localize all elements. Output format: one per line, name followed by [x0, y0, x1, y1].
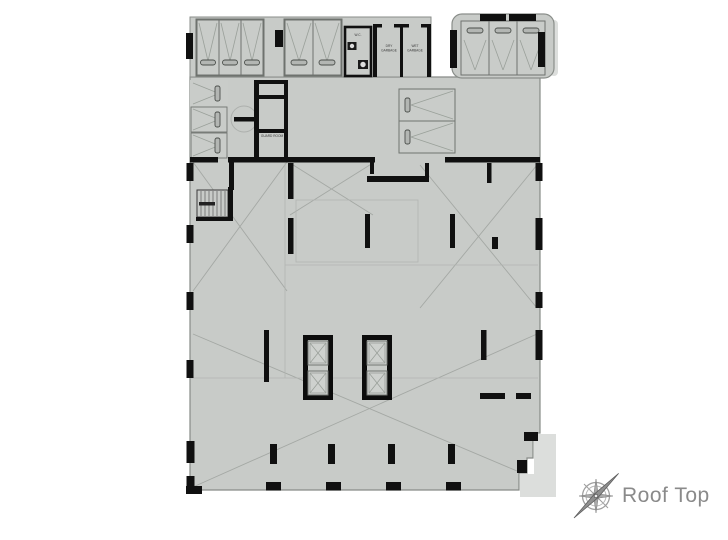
- stall-unit: [197, 20, 219, 75]
- wet-garbage-label-1: WET: [411, 44, 418, 48]
- stall-group-b: [284, 19, 342, 76]
- wet-garbage-label-2: GARBAGE: [407, 49, 423, 53]
- compass-rose-icon: [574, 473, 619, 518]
- stall-group-c: [450, 14, 554, 78]
- wc-room-label: W.C.: [355, 33, 362, 37]
- stall-unit: [489, 21, 517, 75]
- floor-plan-page: W.C. DRY GARBAGE WET GARBAGE: [0, 0, 728, 540]
- wall-stub: [275, 30, 283, 47]
- floor-plan-drawing: W.C. DRY GARBAGE WET GARBAGE: [0, 0, 728, 540]
- stair-direction-bar: [199, 202, 215, 206]
- stall-group-a: [196, 19, 264, 76]
- elevator-cab: [367, 371, 387, 395]
- elevator-cab: [308, 341, 328, 365]
- elevator-cab: [308, 371, 328, 395]
- stairwell: [196, 187, 233, 221]
- wall-stub: [450, 30, 457, 68]
- stall-unit: [285, 20, 313, 75]
- right-machine-cells: [399, 89, 455, 153]
- main-floor-slab: [190, 77, 540, 490]
- wall-stub: [509, 14, 536, 21]
- floor-title: Roof Top: [622, 484, 710, 507]
- dry-garbage-label-1: DRY: [386, 44, 394, 48]
- wall-stub: [538, 32, 545, 67]
- toilet-icon: [348, 42, 357, 50]
- elevator-core-2: [365, 338, 390, 398]
- guard-room-label: GUARD ROOM: [261, 134, 284, 138]
- wc-room: W.C.: [345, 27, 371, 76]
- door-leaf: [234, 117, 255, 122]
- stall-unit: [241, 20, 263, 75]
- stall-unit: [461, 21, 489, 75]
- left-storage-cells: [190, 80, 228, 159]
- elevator-core-1: [306, 338, 331, 398]
- stall-unit: [313, 20, 341, 75]
- elevator-cab: [367, 341, 387, 365]
- sink-icon: [358, 60, 368, 69]
- wall-stub: [186, 33, 193, 59]
- dry-garbage-label-2: GARBAGE: [381, 49, 397, 53]
- wall-stub: [480, 14, 506, 21]
- stall-unit: [219, 20, 241, 75]
